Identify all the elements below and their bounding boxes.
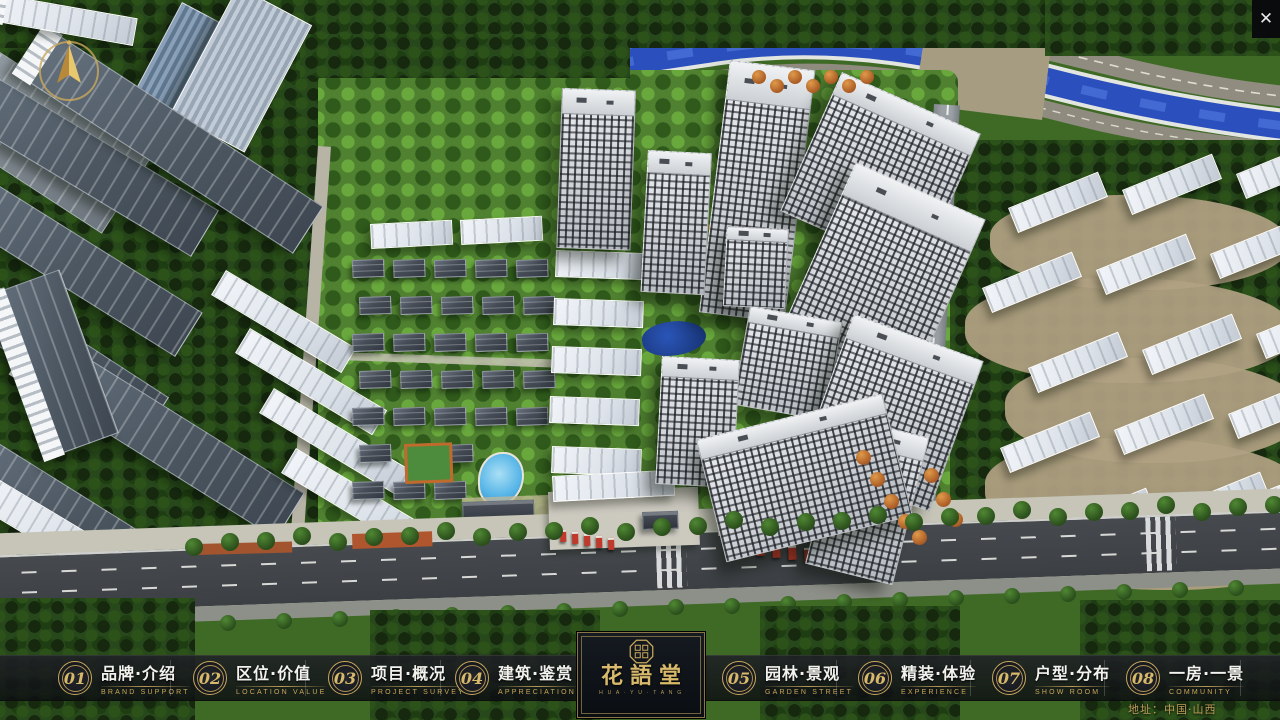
- villa: [434, 259, 467, 278]
- tree: [545, 522, 563, 540]
- mid-rise-slab: [460, 216, 543, 245]
- tower-building: [556, 88, 636, 250]
- tree: [1228, 580, 1244, 596]
- tree: [1116, 584, 1132, 600]
- nav-subtitle: GARDEN STREET: [765, 689, 853, 696]
- nav-separator: [170, 660, 171, 696]
- nav-subtitle: EXPERIENCE: [901, 689, 976, 696]
- nav-separator: [836, 660, 837, 696]
- nav-number-badge: 07: [992, 661, 1026, 695]
- villa: [516, 407, 549, 426]
- tree: [1172, 582, 1188, 598]
- mid-rise-slab: [555, 250, 646, 280]
- nav-separator: [970, 660, 971, 696]
- orange-tree: [770, 79, 784, 93]
- tree: [1049, 508, 1067, 526]
- seal-icon: [629, 639, 654, 664]
- logo-tagline: H U A · Y U · T A N G: [587, 690, 694, 695]
- nav-item-location[interactable]: 02 区位·价值 LOCATION VALUE: [193, 660, 326, 696]
- nav-subtitle: LOCATION VALUE: [236, 689, 326, 696]
- nav-item-decoration[interactable]: 06 精装·体验 EXPERIENCE: [858, 660, 976, 696]
- villa: [516, 259, 549, 278]
- tree: [257, 532, 275, 550]
- tree: [401, 527, 419, 545]
- tower-roof: [662, 357, 739, 381]
- orange-tree: [824, 70, 838, 84]
- tree: [1085, 503, 1103, 521]
- nav-item-project[interactable]: 03 项目·概况 PROJECT SURVEY: [328, 660, 465, 696]
- villa: [475, 407, 508, 426]
- tree: [689, 517, 707, 535]
- nav-separator: [1104, 660, 1105, 696]
- nav-separator: [440, 660, 441, 696]
- villa: [352, 481, 385, 500]
- gold-divider: [901, 686, 976, 687]
- nav-title: 区位·价值: [236, 660, 326, 684]
- masterplan-render[interactable]: [0, 0, 1280, 720]
- villa: [359, 444, 392, 463]
- nav-number-badge: 01: [58, 661, 92, 695]
- forest: [300, 34, 630, 78]
- nav-separator: [305, 660, 306, 696]
- nav-number-badge: 08: [1126, 661, 1160, 695]
- orange-tree: [912, 530, 927, 545]
- sports-court: [404, 442, 453, 484]
- villa: [393, 407, 426, 426]
- forest: [1045, 0, 1280, 56]
- tree: [293, 527, 311, 545]
- tree: [509, 523, 527, 541]
- villa: [434, 407, 467, 426]
- orange-tree: [860, 70, 874, 84]
- compass-icon: [36, 38, 102, 104]
- nav-subtitle: COMMUNITY: [1169, 689, 1244, 696]
- close-icon: ✕: [1259, 9, 1273, 29]
- tower-building: [723, 226, 789, 309]
- tree: [797, 513, 815, 531]
- villa: [352, 407, 385, 426]
- car: [788, 546, 797, 560]
- logo-name: 花語堂: [578, 664, 704, 689]
- orange-tree: [936, 492, 951, 507]
- nav-number-badge: 06: [858, 661, 892, 695]
- tree: [437, 522, 455, 540]
- villa: [475, 333, 508, 352]
- gold-divider: [1169, 686, 1244, 687]
- villa: [352, 333, 385, 352]
- tree: [941, 508, 959, 526]
- crosswalk: [1145, 516, 1177, 571]
- tree: [1004, 588, 1020, 604]
- roof-edge: [0, 0, 8, 25]
- nav-number-badge: 05: [722, 661, 756, 695]
- tree: [581, 517, 599, 535]
- villa: [359, 370, 392, 389]
- villa: [393, 333, 426, 352]
- nav-title: 项目·概况: [371, 660, 465, 684]
- orange-tree: [842, 79, 856, 93]
- nav-subtitle: APPRECIATION: [498, 689, 576, 696]
- car: [608, 538, 614, 550]
- orange-tree: [884, 494, 899, 509]
- tree: [1265, 496, 1280, 514]
- nav-title: 精装·体验: [901, 660, 976, 684]
- car: [584, 534, 590, 546]
- nav-item-architecture[interactable]: 04 建筑·鉴赏 APPRECIATION: [455, 660, 576, 696]
- nav-number-badge: 03: [328, 661, 362, 695]
- nav-title: 品牌·介绍: [101, 660, 190, 684]
- nav-title: 园林·景观: [765, 660, 853, 684]
- nav-separator: [1240, 660, 1241, 696]
- close-button[interactable]: ✕: [1252, 0, 1280, 38]
- mid-rise-slab: [370, 220, 453, 249]
- villa: [434, 333, 467, 352]
- gold-divider: [498, 686, 576, 687]
- orange-tree: [752, 70, 766, 84]
- villa: [400, 296, 433, 315]
- tower-roof: [562, 89, 635, 116]
- orange-tree: [806, 79, 820, 93]
- address-text: 地址：中国·山西: [1128, 701, 1217, 717]
- gold-divider: [236, 686, 326, 687]
- villa: [475, 259, 508, 278]
- villa: [523, 296, 556, 315]
- shrub-strip: [352, 531, 432, 549]
- villa: [482, 296, 515, 315]
- gold-divider: [1035, 686, 1110, 687]
- car: [572, 532, 578, 544]
- nav-number-badge: 04: [455, 661, 489, 695]
- nav-subtitle: PROJECT SURVEY: [371, 689, 465, 696]
- orange-tree: [924, 468, 939, 483]
- tree: [1121, 502, 1139, 520]
- tree: [653, 518, 671, 536]
- tree: [1060, 586, 1076, 602]
- tower-roof: [727, 227, 788, 243]
- tower-building: [641, 150, 712, 295]
- villa: [393, 259, 426, 278]
- mid-rise-slab: [551, 346, 642, 376]
- orange-tree: [870, 472, 885, 487]
- nav-title: 户型·分布: [1035, 660, 1110, 684]
- villa: [359, 296, 392, 315]
- villa: [482, 370, 515, 389]
- tree: [833, 512, 851, 530]
- car: [596, 536, 602, 548]
- gold-divider: [765, 686, 853, 687]
- nav-title: 一房·一景: [1169, 660, 1244, 684]
- villa: [441, 296, 474, 315]
- logo-huayutang[interactable]: 花語堂 H U A · Y U · T A N G: [577, 632, 705, 718]
- tree: [948, 590, 964, 606]
- tree: [1193, 503, 1211, 521]
- villa: [441, 370, 474, 389]
- nav-subtitle: SHOW ROOM: [1035, 689, 1110, 696]
- villa: [516, 333, 549, 352]
- mid-rise-slab: [553, 298, 644, 328]
- gold-divider: [371, 686, 465, 687]
- tree: [1229, 498, 1247, 516]
- orange-tree: [788, 70, 802, 84]
- tower-roof: [648, 151, 711, 176]
- nav-number-badge: 02: [193, 661, 227, 695]
- gold-divider: [101, 686, 190, 687]
- villa: [400, 370, 433, 389]
- app-window: ✕ 01 品牌·介绍 BRAND SUPPORT 02 区位·价值 LOCATI…: [0, 0, 1280, 720]
- orange-tree: [856, 450, 871, 465]
- villa: [352, 259, 385, 278]
- mid-rise-slab: [549, 396, 640, 426]
- tree: [977, 507, 995, 525]
- nav-title: 建筑·鉴赏: [498, 660, 576, 684]
- nav-item-views[interactable]: 08 一房·一景 COMMUNITY: [1126, 660, 1244, 696]
- nav-item-floorplans[interactable]: 07 户型·分布 SHOW ROOM: [992, 660, 1110, 696]
- tree: [724, 598, 740, 614]
- nav-subtitle: BRAND SUPPORT: [101, 689, 190, 696]
- nav-item-garden[interactable]: 05 园林·景观 GARDEN STREET: [722, 660, 853, 696]
